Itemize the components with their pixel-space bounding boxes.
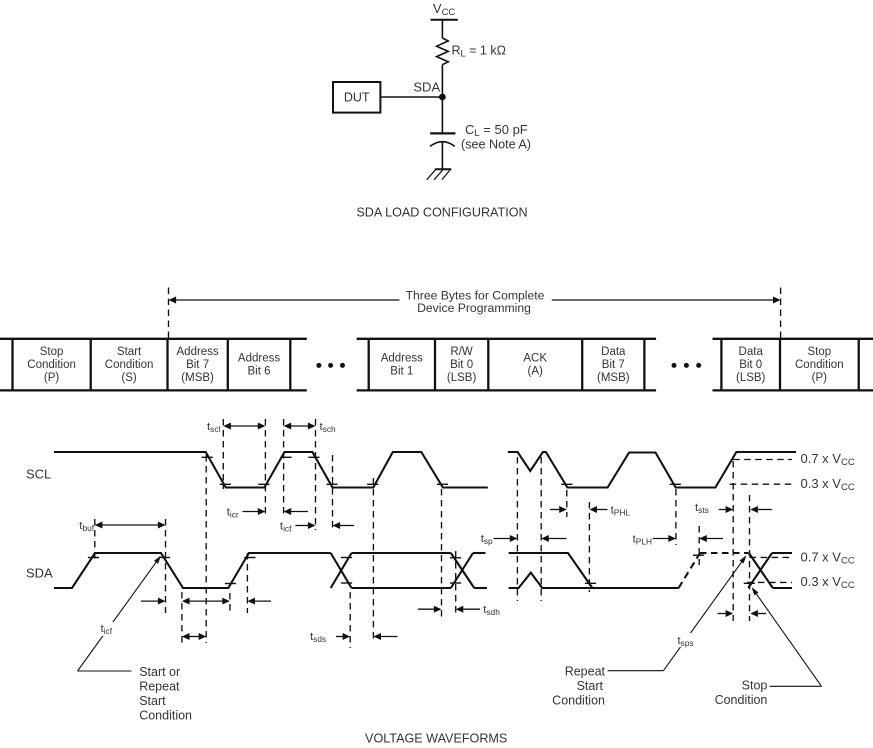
svg-text:Bit 0: Bit 0 xyxy=(739,359,762,371)
svg-text:(P): (P) xyxy=(44,372,60,384)
svg-text:(P): (P) xyxy=(812,372,828,384)
svg-text:Condition: Condition xyxy=(552,694,605,708)
svg-text:Condition: Condition xyxy=(795,359,844,371)
svg-text:0.7 x VCC: 0.7 x VCC xyxy=(801,451,855,468)
svg-text:(see Note A): (see Note A) xyxy=(461,138,531,152)
svg-text:tsch: tsch xyxy=(320,421,337,434)
svg-text:tPHL: tPHL xyxy=(611,505,631,518)
svg-text:VOLTAGE WAVEFORMS: VOLTAGE WAVEFORMS xyxy=(365,732,507,746)
svg-text:Repeat: Repeat xyxy=(139,680,180,694)
svg-text:Condition: Condition xyxy=(105,359,154,371)
svg-text:0.3 x VCC: 0.3 x VCC xyxy=(801,574,855,591)
svg-text:tsp: tsp xyxy=(481,533,493,546)
svg-text:(LSB): (LSB) xyxy=(736,372,766,384)
svg-text:0.7 x VCC: 0.7 x VCC xyxy=(801,550,855,567)
svg-text:Start: Start xyxy=(139,694,166,708)
svg-text:Address: Address xyxy=(238,353,280,365)
svg-text:Stop: Stop xyxy=(40,346,64,358)
svg-text:Bit 0: Bit 0 xyxy=(450,359,473,371)
svg-text:Bit 7: Bit 7 xyxy=(602,359,625,371)
svg-text:Condition: Condition xyxy=(139,709,192,723)
svg-text:R/W: R/W xyxy=(450,346,473,358)
svg-text:Device Programming: Device Programming xyxy=(417,301,531,315)
svg-text:Data: Data xyxy=(601,346,626,358)
svg-text:tsdh: tsdh xyxy=(483,604,500,617)
svg-text:Start: Start xyxy=(577,679,604,693)
svg-text:Bit 6: Bit 6 xyxy=(247,366,270,378)
svg-text:ticf: ticf xyxy=(280,521,292,534)
svg-text:Bit 7: Bit 7 xyxy=(186,359,209,371)
svg-text:(MSB): (MSB) xyxy=(597,372,630,384)
svg-text:DUT: DUT xyxy=(344,91,370,105)
svg-text:Address: Address xyxy=(381,353,423,365)
svg-text:Stop: Stop xyxy=(807,346,831,358)
svg-text:Stop: Stop xyxy=(742,679,768,693)
svg-text:ticr: ticr xyxy=(227,507,239,520)
svg-text:VCC: VCC xyxy=(433,1,456,18)
svg-text:SDA LOAD CONFIGURATION: SDA LOAD CONFIGURATION xyxy=(356,206,527,220)
svg-text:(LSB): (LSB) xyxy=(447,372,477,384)
svg-text:Condition: Condition xyxy=(715,693,768,707)
svg-text:Start: Start xyxy=(117,346,142,358)
svg-text:tsds: tsds xyxy=(310,631,326,644)
svg-text:tbuf: tbuf xyxy=(79,520,94,533)
svg-text:RL = 1 kΩ: RL = 1 kΩ xyxy=(452,44,506,59)
svg-text:tscl: tscl xyxy=(207,421,221,434)
svg-text:SDA: SDA xyxy=(413,80,440,95)
svg-text:Data: Data xyxy=(739,346,764,358)
svg-text:SDA: SDA xyxy=(26,566,53,581)
svg-text:(MSB): (MSB) xyxy=(181,372,214,384)
svg-text:(S): (S) xyxy=(121,372,137,384)
svg-text:ACK: ACK xyxy=(523,353,547,365)
svg-text:tPLH: tPLH xyxy=(633,534,652,547)
svg-text:0.3 x VCC: 0.3 x VCC xyxy=(801,476,855,493)
svg-text:Start or: Start or xyxy=(139,665,180,679)
svg-text:Address: Address xyxy=(177,346,219,358)
svg-text:tsts: tsts xyxy=(695,502,709,515)
svg-text:Repeat: Repeat xyxy=(565,665,606,679)
svg-text:Bit 1: Bit 1 xyxy=(390,366,413,378)
svg-text:SCL: SCL xyxy=(26,467,51,482)
svg-text:(A): (A) xyxy=(528,366,544,378)
svg-text:Condition: Condition xyxy=(27,359,76,371)
